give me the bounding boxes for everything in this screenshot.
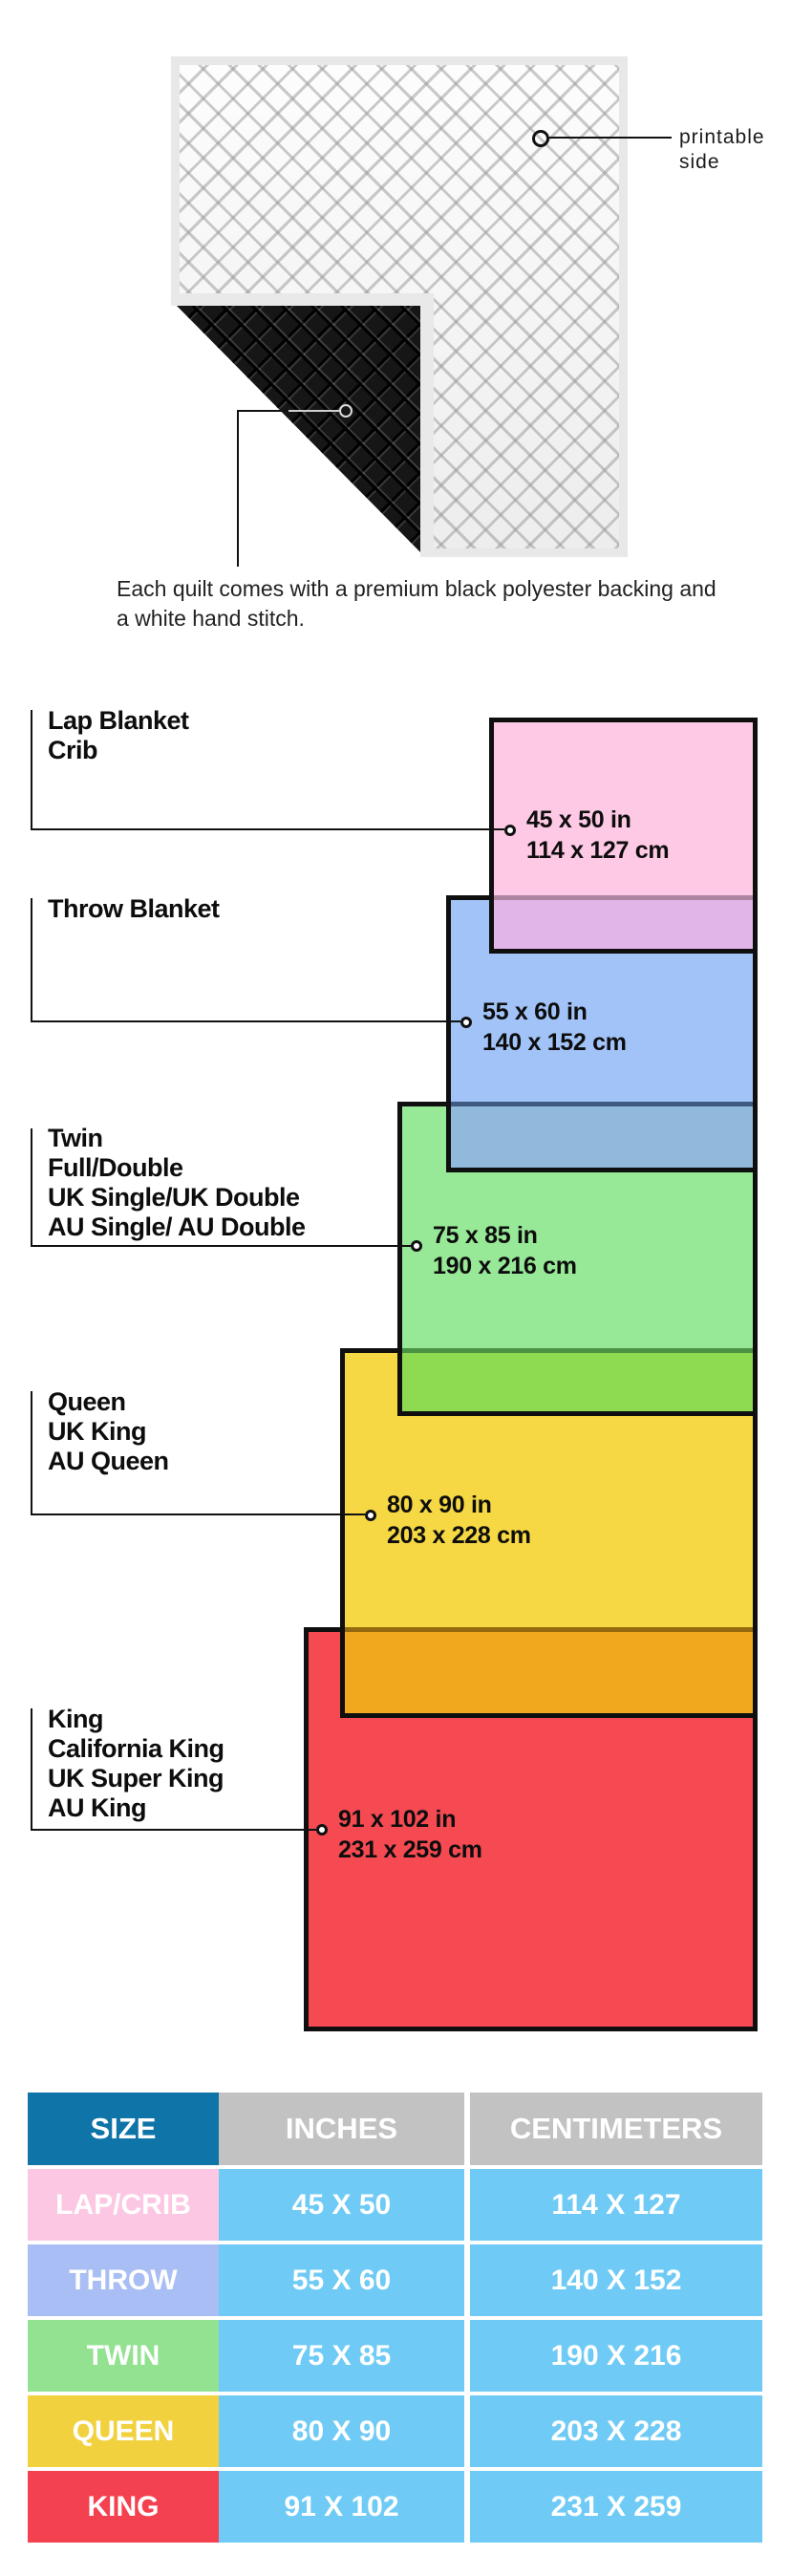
backing-marker-icon (339, 404, 353, 418)
overlap-pink-blue (494, 895, 753, 949)
label-queen: Queen UK King AU Queen (48, 1387, 169, 1476)
dot-throw-icon (460, 1017, 472, 1028)
dot-twin-icon (411, 1240, 422, 1252)
table-row-king: KING 91 X 102 231 X 259 (28, 2471, 762, 2543)
cell-cm: 190 X 216 (470, 2320, 762, 2392)
printable-side-marker-icon (532, 130, 549, 147)
label-throw: Throw Blanket (48, 894, 220, 924)
overlap-blue-green (451, 1102, 753, 1168)
quilt-caption: Each quilt comes with a premium black po… (117, 574, 718, 633)
cell-inches: 45 X 50 (219, 2169, 464, 2241)
leader-twin-vertical (31, 1128, 32, 1247)
leader-twin-horizontal (31, 1245, 411, 1247)
cell-size: KING (28, 2471, 219, 2543)
leader-queen-vertical (31, 1391, 32, 1515)
cell-cm: 114 X 127 (470, 2169, 762, 2241)
dot-lap-icon (504, 825, 516, 836)
table-row-lap-crib: LAP/CRIB 45 X 50 114 X 127 (28, 2169, 762, 2241)
header-size: SIZE (28, 2093, 219, 2165)
backing-leader-line-vertical (237, 410, 239, 567)
leader-throw-horizontal (31, 1020, 460, 1022)
dims-queen: 80 x 90 in 203 x 228 cm (387, 1490, 531, 1551)
backing-leader-line-light (289, 410, 339, 412)
printable-side-leader-line (549, 137, 672, 139)
leader-lap-horizontal (31, 828, 504, 830)
cell-size: LAP/CRIB (28, 2169, 219, 2241)
leader-king-horizontal (31, 1829, 316, 1831)
quilt-backing-black-image (175, 304, 421, 553)
leader-queen-horizontal (31, 1513, 365, 1515)
dot-queen-icon (365, 1510, 376, 1521)
cell-size: THROW (28, 2244, 219, 2316)
header-inches: INCHES (219, 2093, 464, 2165)
leader-lap-vertical (31, 710, 32, 830)
table-row-twin: TWIN 75 X 85 190 X 216 (28, 2320, 762, 2392)
overlap-green-yellow (402, 1348, 753, 1411)
quilt-fold-binding-vertical (420, 293, 434, 557)
label-lap-crib: Lap Blanket Crib (48, 706, 189, 765)
table-row-throw: THROW 55 X 60 140 X 152 (28, 2244, 762, 2316)
cell-size: QUEEN (28, 2395, 219, 2467)
label-king: King California King UK Super King AU Ki… (48, 1705, 224, 1823)
size-table: SIZE INCHES CENTIMETERS LAP/CRIB 45 X 50… (28, 2093, 762, 2546)
cell-inches: 91 X 102 (219, 2471, 464, 2543)
cell-size: TWIN (28, 2320, 219, 2392)
cell-cm: 231 X 259 (470, 2471, 762, 2543)
cell-inches: 75 X 85 (219, 2320, 464, 2392)
dims-king: 91 x 102 in 231 x 259 cm (338, 1804, 482, 1865)
dot-king-icon (316, 1824, 328, 1835)
overlap-yellow-red (345, 1627, 753, 1713)
leader-king-vertical (31, 1708, 32, 1831)
leader-throw-vertical (31, 898, 32, 1022)
header-centimeters: CENTIMETERS (470, 2093, 762, 2165)
cell-cm: 140 X 152 (470, 2244, 762, 2316)
cell-inches: 80 X 90 (219, 2395, 464, 2467)
cell-cm: 203 X 228 (470, 2395, 762, 2467)
printable-side-label: printable side (679, 125, 771, 175)
dims-lap-crib: 45 x 50 in 114 x 127 cm (526, 805, 669, 866)
backing-leader-line-dark (238, 410, 289, 412)
quilt-fold-binding-horizontal (171, 293, 434, 306)
cell-inches: 55 X 60 (219, 2244, 464, 2316)
table-header-row: SIZE INCHES CENTIMETERS (28, 2093, 762, 2165)
dims-throw: 55 x 60 in 140 x 152 cm (482, 997, 627, 1058)
table-row-queen: QUEEN 80 X 90 203 X 228 (28, 2395, 762, 2467)
dims-twin: 75 x 85 in 190 x 216 cm (433, 1220, 577, 1281)
quilt-size-infographic: printable side Each quilt comes with a p… (0, 0, 791, 2576)
label-twin: Twin Full/Double UK Single/UK Double AU … (48, 1124, 306, 1242)
